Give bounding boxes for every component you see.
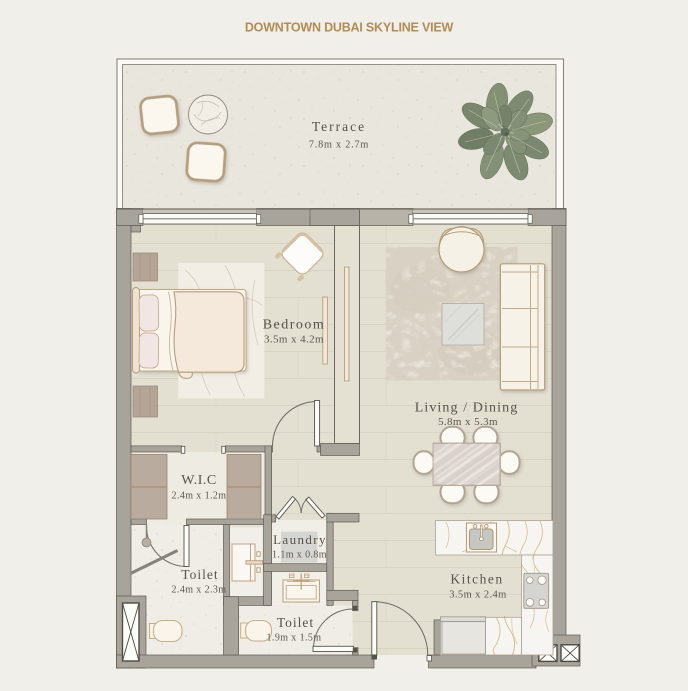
svg-text:Bedroom: Bedroom — [263, 318, 326, 333]
svg-text:1.9m x 1.5m: 1.9m x 1.5m — [267, 633, 322, 644]
svg-text:3.5m x 2.4m: 3.5m x 2.4m — [449, 590, 507, 601]
svg-text:Toilet: Toilet — [277, 615, 314, 630]
svg-text:Laundry: Laundry — [273, 532, 327, 547]
svg-text:Terrace: Terrace — [312, 119, 366, 134]
svg-text:W.I.C: W.I.C — [181, 473, 216, 488]
svg-text:Toilet: Toilet — [181, 567, 218, 582]
svg-text:2.4m x 2.3m: 2.4m x 2.3m — [172, 585, 227, 596]
svg-text:3.5m x 4.2m: 3.5m x 4.2m — [264, 334, 324, 346]
svg-text:7.8m x 2.7m: 7.8m x 2.7m — [309, 140, 369, 151]
svg-text:2.4m x 1.2m: 2.4m x 1.2m — [172, 491, 227, 502]
svg-text:1.1m x 0.8m: 1.1m x 0.8m — [272, 550, 327, 561]
svg-text:Living / Dining: Living / Dining — [415, 401, 519, 416]
svg-text:Kitchen: Kitchen — [450, 572, 503, 587]
svg-text:DOWNTOWN DUBAI SKYLINE VIEW: DOWNTOWN DUBAI SKYLINE VIEW — [245, 21, 454, 35]
